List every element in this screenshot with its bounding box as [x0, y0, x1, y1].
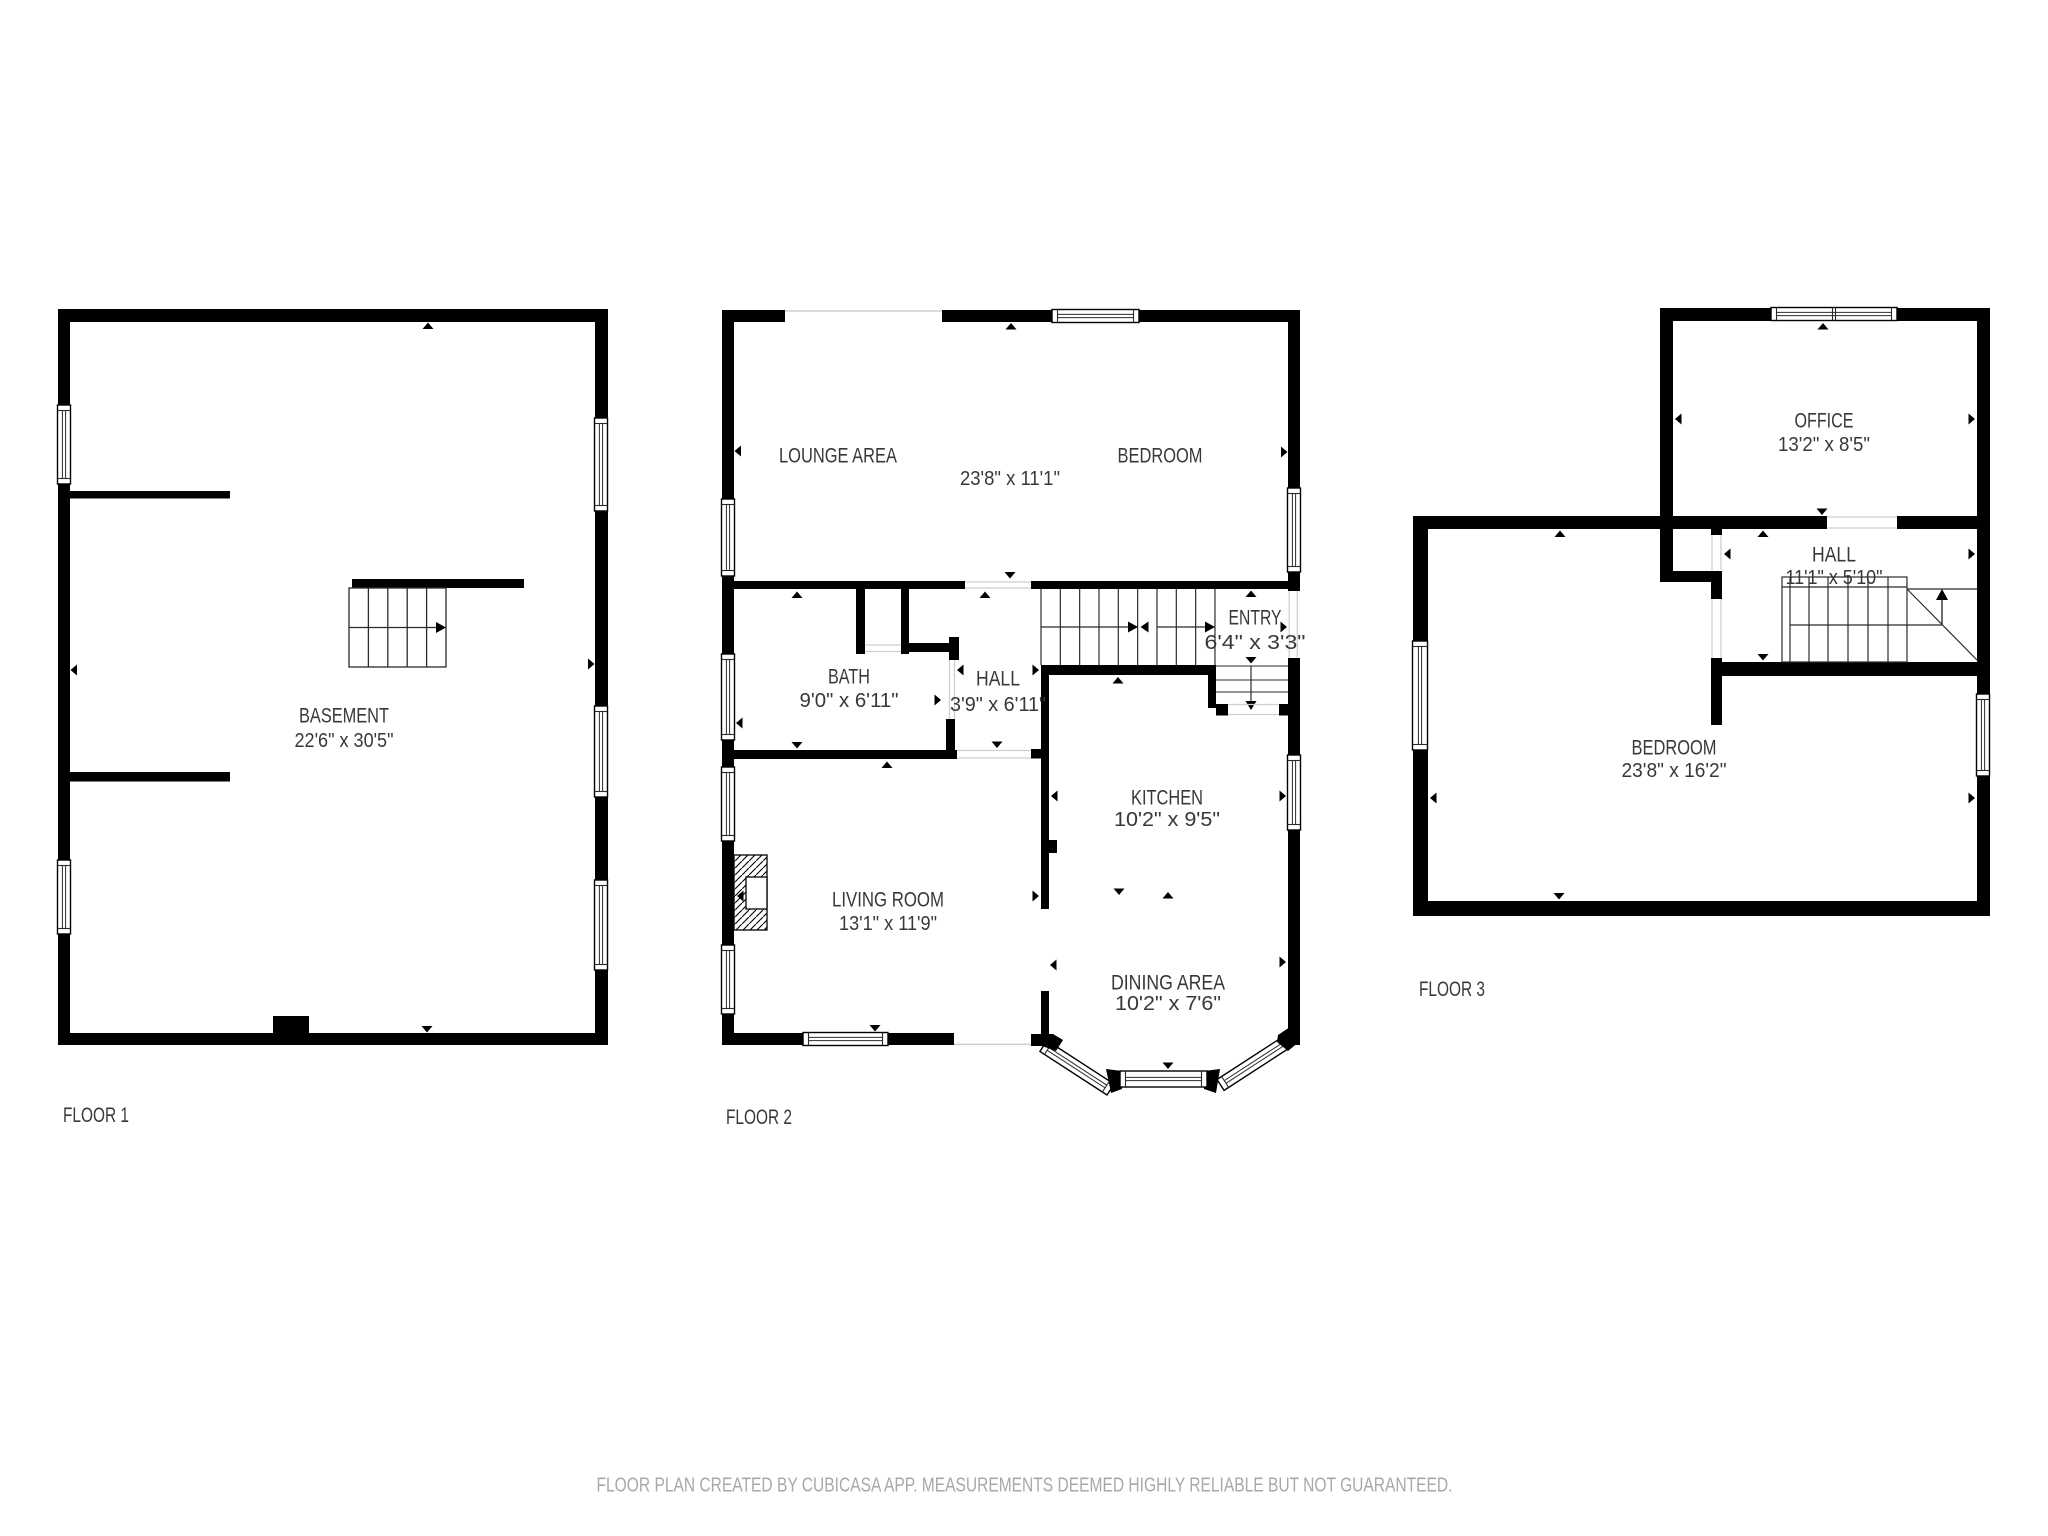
svg-text:9'0" x 6'11": 9'0" x 6'11": [800, 690, 899, 712]
svg-text:23'8" x 16'2": 23'8" x 16'2": [1622, 760, 1727, 782]
svg-text:HALL: HALL: [976, 668, 1020, 691]
svg-text:BEDROOM: BEDROOM: [1632, 737, 1717, 760]
svg-text:ENTRY: ENTRY: [1229, 607, 1282, 630]
svg-text:DINING AREA: DINING AREA: [1111, 972, 1225, 995]
svg-text:BEDROOM: BEDROOM: [1118, 445, 1203, 468]
svg-text:23'8" x 11'1": 23'8" x 11'1": [960, 468, 1060, 490]
svg-text:22'6" x 30'5": 22'6" x 30'5": [295, 730, 394, 752]
svg-text:10'2" x 9'5": 10'2" x 9'5": [1114, 809, 1220, 831]
svg-text:6'4" x 3'3": 6'4" x 3'3": [1205, 632, 1306, 654]
svg-text:3'9" x 6'11": 3'9" x 6'11": [950, 694, 1046, 716]
svg-text:13'2" x 8'5": 13'2" x 8'5": [1778, 434, 1870, 456]
svg-text:KITCHEN: KITCHEN: [1131, 787, 1203, 810]
svg-text:10'2" x 7'6": 10'2" x 7'6": [1115, 993, 1221, 1015]
svg-text:OFFICE: OFFICE: [1795, 410, 1854, 433]
svg-text:11'1" x 5'10": 11'1" x 5'10": [1786, 567, 1883, 589]
svg-text:BATH: BATH: [828, 666, 870, 689]
svg-text:BASEMENT: BASEMENT: [299, 705, 389, 728]
svg-text:13'1" x 11'9": 13'1" x 11'9": [839, 913, 937, 935]
svg-text:FLOOR PLAN CREATED BY CUBICASA: FLOOR PLAN CREATED BY CUBICASA APP. MEAS…: [597, 1475, 1453, 1497]
svg-text:FLOOR 1: FLOOR 1: [63, 1104, 129, 1127]
svg-text:FLOOR 2: FLOOR 2: [726, 1106, 792, 1129]
svg-text:LOUNGE AREA: LOUNGE AREA: [779, 445, 897, 468]
svg-text:LIVING ROOM: LIVING ROOM: [832, 889, 944, 912]
svg-text:HALL: HALL: [1812, 544, 1856, 567]
svg-text:FLOOR 3: FLOOR 3: [1419, 978, 1485, 1001]
